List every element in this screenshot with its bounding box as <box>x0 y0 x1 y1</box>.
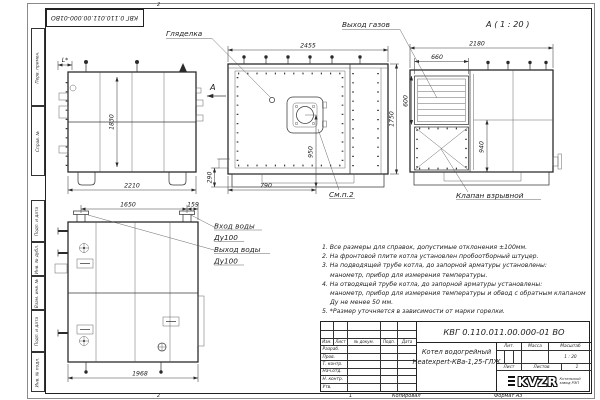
sheets-count: 1 <box>562 364 592 370</box>
title-block: Изм. Лист № докум. Подп. Дата Разраб. Пр… <box>320 321 590 392</box>
dim-side-width: 2210 <box>124 183 140 190</box>
company-logo-row: KVZR Котельный завод РЭП <box>497 371 592 391</box>
label-glyadelka: Гляделка <box>166 29 202 38</box>
view-rear: 2180 660 600 940 Выход газов А ( 1 : 20 … <box>342 19 562 200</box>
product-name-line2: Heatexpert-КВа-1,25-ГЛЖ <box>413 358 501 368</box>
scale-label: Масштаб <box>549 343 592 350</box>
view-left-side: 1830 2210 L* <box>58 57 203 194</box>
doc-number: КВГ 0.110.011.00.000-01 ВО <box>417 322 591 343</box>
section-a-letter: А <box>209 82 216 92</box>
label-gas-outlet: Выход газов <box>342 20 390 29</box>
copy-zone-mark: 1 <box>349 393 352 399</box>
dim-rear-width: 2180 <box>469 41 485 48</box>
kvzr-logo-bars-icon <box>508 376 515 387</box>
format-label: Формат А3 <box>494 393 522 399</box>
row-razrab: Разраб. <box>321 346 348 352</box>
label-water-inlet: Вход воды <box>214 222 255 231</box>
dim-gas-outlet-width: 660 <box>431 54 443 61</box>
frame-col-label: Справ. № <box>36 131 41 152</box>
dim-front-width: 2455 <box>300 43 316 50</box>
rotated-stamp-text: КВГ 0.110.011.00.000-01ВО <box>51 14 138 21</box>
zone-mark-top: 2 <box>157 2 160 8</box>
label-view-a-title: А ( 1 : 20 ) <box>485 19 529 29</box>
note-line: манометр, прибор для измерения температу… <box>322 289 588 298</box>
lit-label: Лит. <box>497 343 522 350</box>
kvzr-logo-text: KVZR <box>517 374 557 389</box>
col-list: Лист <box>334 339 348 346</box>
frame-col-label: Инв. № подл. <box>36 357 41 387</box>
frame-col-label: Подп. и дата <box>36 206 41 235</box>
label-explosion-valve: Клапан взрывной <box>456 191 524 200</box>
dim-front-height: 1750 <box>389 111 396 127</box>
view-front: 2455 1750 950 790 290 Гляделка <box>166 29 399 199</box>
frame-col-podp-data-1: Подп. и дата <box>31 200 45 242</box>
note-line: 5. *Размер уточняется в зависимости от м… <box>322 307 588 316</box>
note-line: 2. На фронтовой плите котла установлен п… <box>322 252 588 261</box>
note-line: 3. На подводящей трубе котла, до запорно… <box>322 261 588 270</box>
dim-side-height: 1830 <box>109 114 116 130</box>
frame-col-label: Перв. примен. <box>36 51 41 83</box>
frame-col-podp-data-2: Подп. и дата <box>31 310 45 352</box>
row-prov: Пров. <box>321 354 348 360</box>
frame-col-perv-primen: Перв. примен. <box>31 28 45 106</box>
note-line: 4. На отводящей трубе котла, до запорной… <box>322 280 588 289</box>
label-water-outlet-du: Ду100 <box>213 257 238 266</box>
product-name-line1: Котел водогрейный <box>422 348 491 358</box>
kvzr-logo-caption: Котельный завод РЭП <box>560 377 581 385</box>
frame-col-label: Инв. № дубл. <box>36 244 41 273</box>
frame-col-label: Подп. и дата <box>36 316 41 345</box>
col-docnum: № докум. <box>348 339 381 346</box>
frame-col-inv-dubl: Инв. № дубл. <box>31 242 45 276</box>
dim-burner-offset: 790 <box>260 183 272 190</box>
title-block-stats: Лит. Масса Масштаб 1 : 20 Лист Листов 1 <box>497 343 592 391</box>
copied-label: Копировал <box>392 393 421 399</box>
signature-header-row: Изм. Лист № докум. Подп. Дата <box>321 339 416 347</box>
view-plan: 1650 159 1968 Вход воды Ду100 Выход воды… <box>55 202 270 383</box>
gas-outlet-louver <box>415 76 469 125</box>
col-izm: Изм. <box>321 339 334 346</box>
sheet-label: Лист <box>497 364 522 370</box>
product-name: Котел водогрейный Heatexpert-КВа-1,25-ГЛ… <box>417 343 497 391</box>
dim-burner-height: 950 <box>308 146 315 158</box>
label-water-inlet-du: Ду100 <box>213 233 238 242</box>
row-n-kontr: Н. контр. <box>321 376 348 382</box>
dim-plan-pipe-span: 1650 <box>120 202 136 209</box>
frame-col-inv-podl: Инв. № подл. <box>31 352 45 392</box>
dim-plan-pipe-edge: 159 <box>187 202 199 209</box>
rotated-stamp-box: КВГ 0.110.011.00.000-01ВО <box>46 9 144 27</box>
mass-label: Масса <box>522 343 549 350</box>
note-line: манометр, прибор для измерения температу… <box>322 271 588 280</box>
title-block-signature-grid: Изм. Лист № докум. Подп. Дата Разраб. Пр… <box>321 322 416 391</box>
label-water-outlet: Выход воды <box>214 245 261 254</box>
row-nach-otd: Нач.отд. <box>321 369 348 375</box>
frame-col-sprav: Справ. № <box>31 106 45 176</box>
dim-plan-width: 1968 <box>132 371 148 378</box>
dim-gas-outlet-height: 600 <box>403 95 410 107</box>
dim-side-asterisk: L* <box>62 57 69 64</box>
note-line: Ду не менее 50 мм. <box>322 298 588 307</box>
sheets-label: Листов <box>522 364 562 370</box>
row-t-kontr: Т. контр. <box>321 361 348 367</box>
kvzr-caption-line2: завод РЭП <box>560 381 581 385</box>
row-utv: Утв. <box>321 384 348 391</box>
col-podp: Подп. <box>381 339 398 346</box>
scale-value: 1 : 20 <box>549 351 592 363</box>
col-data: Дата <box>398 339 416 346</box>
section-arrow-a: А <box>207 82 226 96</box>
dim-rear-right-height: 940 <box>479 141 486 153</box>
frame-col-label: Взам. инв. № <box>36 278 41 307</box>
peephole <box>269 97 274 102</box>
note-line: 1. Все размеры для справок, допустимые о… <box>322 243 588 252</box>
label-sm-p2: См.п.2 <box>329 190 354 199</box>
notes-block: 1. Все размеры для справок, допустимые о… <box>322 243 588 317</box>
frame-col-vzam-inv: Взам. инв. № <box>31 276 45 310</box>
zone-mark-bottom: 2 <box>157 393 160 399</box>
dim-stub-height: 290 <box>207 172 214 184</box>
drawing-sheet: 1830 2210 L* А <box>0 0 600 400</box>
